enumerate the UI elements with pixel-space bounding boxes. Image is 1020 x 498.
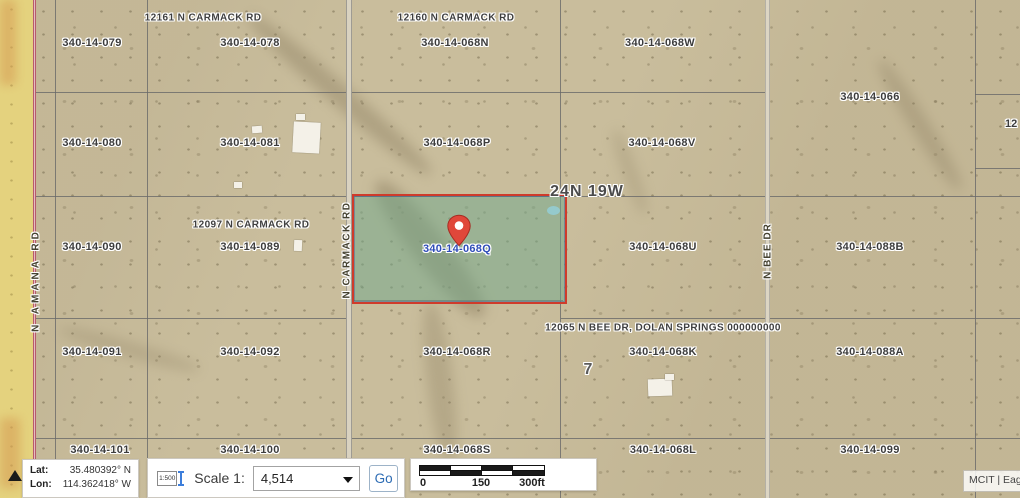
map-attribution: MCIT | Eagle [963, 470, 1020, 492]
toolbar-collapse-icon[interactable] [8, 470, 22, 481]
parcel-boundary-line [975, 94, 1020, 95]
lon-value: 114.362418° W [63, 478, 131, 492]
parcel-label-340-14-068v[interactable]: 340-14-068V [629, 137, 696, 149]
building [665, 374, 674, 380]
road-label-n-amana-rd: N AMANA RD [31, 228, 42, 332]
building [234, 182, 242, 188]
parcel-label-340-14-099[interactable]: 340-14-099 [840, 444, 899, 456]
parcel-label-340-14-101[interactable]: 340-14-101 [70, 444, 129, 456]
township-range-label: 24N 19W [550, 183, 624, 201]
parcel-label-340-14-068l[interactable]: 340-14-068L [630, 444, 696, 456]
gis-map-viewer: 24N 19W 7 12 340-14-079340-14-078340-14-… [0, 0, 1020, 498]
building [648, 379, 673, 397]
parcel-boundary-line [35, 438, 1020, 439]
parcel-label-340-14-068k[interactable]: 340-14-068K [629, 346, 697, 358]
scale-label: Scale 1: [194, 470, 245, 486]
parcel-label-340-14-091[interactable]: 340-14-091 [62, 346, 121, 358]
lat-label: Lat: [30, 464, 48, 478]
parcel-label-340-14-090[interactable]: 340-14-090 [62, 241, 121, 253]
parcel-label-340-14-068n[interactable]: 340-14-068N [421, 37, 489, 49]
building [294, 240, 302, 251]
scalebar-start: 0 [420, 477, 426, 489]
terrain-wash [242, 8, 438, 182]
terrain-patch [0, 0, 16, 85]
parcel-boundary-line [147, 0, 148, 498]
text-cursor-icon [180, 471, 182, 486]
scalebar-labels: 0 150 300ft [419, 476, 579, 489]
parcel-label-340-14-100[interactable]: 340-14-100 [220, 444, 279, 456]
parcel-label-340-14-081[interactable]: 340-14-081 [220, 137, 279, 149]
parcel-boundary-line [55, 0, 56, 498]
parcel-label-340-14-088a[interactable]: 340-14-088A [836, 346, 904, 358]
parcel-label-340-14-088b[interactable]: 340-14-088B [836, 241, 904, 253]
parcel-label-340-14-089[interactable]: 340-14-089 [220, 241, 279, 253]
scale-select[interactable]: 4,514 [253, 466, 360, 491]
parcel-label-340-14-092[interactable]: 340-14-092 [220, 346, 279, 358]
parcel-boundary-line [35, 318, 352, 319]
lat-value: 35.480392° N [70, 464, 131, 478]
scalebar-panel: 0 150 300ft [410, 458, 597, 491]
caret-down-icon [343, 477, 353, 483]
building [252, 126, 262, 134]
parcel-label-340-14-068u[interactable]: 340-14-068U [629, 241, 697, 253]
address-label: 12065 N BEE DR, DOLAN SPRINGS 000000000 [545, 323, 781, 334]
lon-label: Lon: [30, 478, 52, 492]
parcel-boundary-line [975, 168, 1020, 169]
longitude-readout: Lon: 114.362418° W [30, 478, 131, 492]
road-label-n-bee-dr: N BEE DR [763, 223, 774, 279]
parcel-boundary-line [35, 92, 768, 93]
scale-panel: 1:500 Scale 1: 4,514 Go [147, 458, 405, 498]
terrain-pond [547, 206, 560, 215]
section-number-label: 7 [584, 361, 593, 379]
edge-partial-label: 12 [1005, 118, 1017, 130]
terrain-wash [872, 56, 968, 194]
address-label: 12160 N CARMACK RD [398, 13, 515, 24]
building [296, 114, 305, 120]
parcel-label-340-14-068s[interactable]: 340-14-068S [424, 444, 491, 456]
parcel-label-340-14-068r[interactable]: 340-14-068R [423, 346, 491, 358]
map-canvas[interactable]: 24N 19W 7 12 340-14-079340-14-078340-14-… [0, 0, 1020, 498]
parcel-label-340-14-066[interactable]: 340-14-066 [840, 91, 899, 103]
parcel-label-340-14-079[interactable]: 340-14-079 [62, 37, 121, 49]
go-button[interactable]: Go [369, 465, 398, 492]
parcel-label-340-14-078[interactable]: 340-14-078 [220, 37, 279, 49]
scale-select-value: 4,514 [261, 471, 294, 486]
building [292, 121, 321, 153]
scalebar-graphic [419, 465, 545, 476]
location-pin-icon [446, 214, 472, 247]
scalebar-end: 300ft [519, 477, 545, 489]
parcel-label-340-14-068p[interactable]: 340-14-068P [424, 137, 491, 149]
scalebar-mid: 150 [472, 477, 490, 489]
coordinates-panel: Lat: 35.480392° N Lon: 114.362418° W [22, 459, 139, 498]
scale-tool-icon: 1:500 [157, 471, 177, 486]
parcel-boundary-line [975, 0, 976, 498]
parcel-label-340-14-068w[interactable]: 340-14-068W [625, 37, 695, 49]
parcel-boundary-line [561, 318, 1020, 319]
address-label: 12097 N CARMACK RD [193, 220, 310, 231]
parcel-label-340-14-080[interactable]: 340-14-080 [62, 137, 121, 149]
latitude-readout: Lat: 35.480392° N [30, 464, 131, 478]
address-label: 12161 N CARMACK RD [145, 13, 262, 24]
road-label-n-carmack-rd: N CARMACK RD [342, 202, 353, 299]
